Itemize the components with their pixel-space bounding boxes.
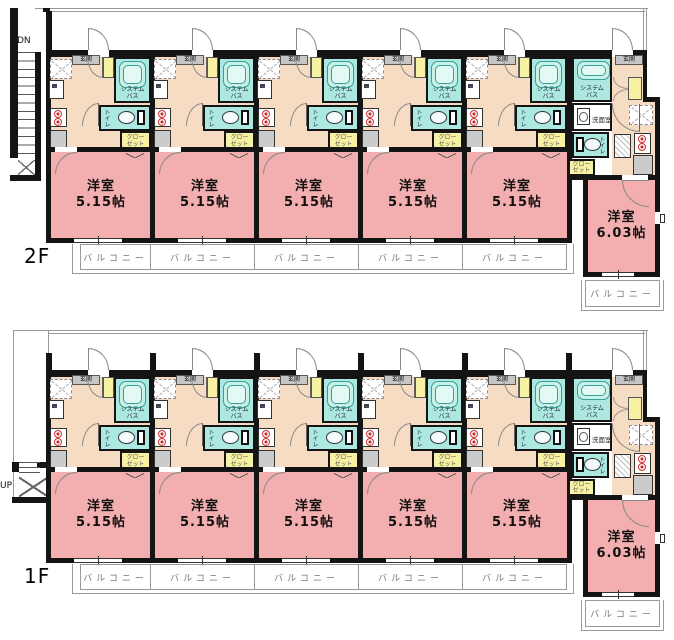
room-size: 5.15帖 [467, 515, 567, 531]
room-size: 5.15帖 [363, 515, 463, 531]
toilet-room: トイレ [572, 452, 609, 478]
apartment-unit: 玄関 システム バス トイレ クロー ゼット [254, 28, 359, 274]
toilet-tank-icon [345, 430, 353, 445]
washing-machine-area [258, 379, 280, 399]
shoe-cabinet [103, 57, 114, 78]
burner-icon [470, 110, 478, 118]
wall-stub [566, 353, 572, 372]
kitchen-sink-icon [465, 80, 480, 99]
refrigerator-space [633, 155, 653, 175]
floor-2f: DN DN 玄関 システム [0, 6, 674, 322]
closet-label-line1: クロー [434, 134, 461, 141]
bath-label-line1: システム [532, 406, 565, 413]
closet-label-line2: ゼット [570, 168, 593, 174]
bathtub-icon [223, 61, 250, 88]
system-bath: システム バス [426, 377, 463, 423]
kitchen-sink-icon [257, 80, 272, 99]
room-size: 5.15帖 [259, 515, 359, 531]
bath-label: システム バス [428, 86, 461, 100]
window [660, 534, 665, 543]
room-name: 洋室 [467, 179, 567, 195]
burner-icon [54, 438, 62, 446]
room-size: 5.15帖 [51, 515, 151, 531]
kitchen-sink-icon [153, 80, 168, 99]
bathtub-icon [535, 61, 562, 88]
shoe-cabinet [519, 57, 530, 78]
toilet-bowl-icon [534, 431, 551, 444]
bathtub-icon [577, 381, 610, 400]
kitchen-sink-icon [49, 400, 64, 419]
bath-label-line2: バス [220, 413, 253, 420]
stove-icon [258, 428, 275, 447]
bath-label: システム バス [116, 86, 149, 100]
entry-door-arc [504, 28, 525, 50]
window [386, 238, 434, 243]
bath-label: システム バス [220, 406, 253, 420]
stove-icon [154, 108, 171, 127]
kitchen-sink-icon [465, 400, 480, 419]
bathtub-icon [223, 381, 250, 408]
toilet-bowl-icon [118, 111, 135, 124]
entry-door-arc [192, 348, 213, 370]
washbasin-icon [577, 108, 590, 125]
entry-door-arc [612, 28, 633, 50]
burner-icon [54, 110, 62, 118]
toilet-room: トイレ [411, 425, 463, 451]
bath-label-line2: バス [532, 93, 565, 100]
room-name: 洋室 [467, 499, 567, 515]
toilet-room: トイレ [411, 105, 463, 131]
room-name: 洋室 [259, 499, 359, 515]
room-name: 洋室 [155, 179, 255, 195]
kitchen-sink-icon [614, 134, 631, 158]
toilet-bowl-icon [430, 111, 447, 124]
entry-door-arc [88, 28, 109, 50]
bath-label: システム バス [428, 406, 461, 420]
burner-icon [158, 118, 166, 126]
room-label: 洋室 5.15帖 [259, 499, 359, 531]
toilet-bowl-icon [222, 111, 239, 124]
room-name: 洋室 [363, 499, 463, 515]
wall [655, 97, 660, 277]
washroom-label: 洗面室 [592, 434, 612, 444]
floor-1f: UP UP 玄関 システム [0, 326, 674, 640]
window [74, 558, 122, 563]
floor-label: 2F [24, 244, 66, 268]
burner-icon [262, 430, 270, 438]
toilet-room: トイレ [307, 105, 359, 131]
washing-machine-area [466, 59, 488, 79]
room-label: 洋室 5.15帖 [155, 499, 255, 531]
burner-icon [366, 438, 374, 446]
washing-machine-area [50, 379, 72, 399]
toilet-label: トイレ [415, 429, 422, 449]
toilet-bowl-icon [326, 111, 343, 124]
room-name: 洋室 [51, 179, 151, 195]
bath-label-line1: システム [574, 85, 610, 92]
toilet-room: トイレ [515, 425, 567, 451]
bath-label: システム バス [532, 86, 565, 100]
entry-door-arc [88, 348, 109, 370]
entrance-label: 玄関 [615, 375, 643, 385]
system-bath: システム バス [114, 57, 151, 103]
system-bath: システム バス [322, 377, 359, 423]
toilet-label: トイレ [103, 109, 110, 129]
apartment-unit: 玄関 システム バス トイレ クロー ゼット [358, 28, 463, 274]
burner-icon [262, 110, 270, 118]
window [282, 558, 330, 563]
bath-label-line2: バス [116, 413, 149, 420]
toilet-label: トイレ [311, 109, 318, 129]
bath-label: システム バス [220, 86, 253, 100]
toilet-tank-icon [137, 430, 145, 445]
stove-icon [466, 108, 483, 127]
kitchen-sink-icon [361, 400, 376, 419]
apartment-unit: 玄関 システム バス トイレ クロー ゼット [254, 348, 359, 594]
room-name: 洋室 [588, 210, 655, 226]
room-label: 洋室 5.15帖 [51, 499, 151, 531]
bathtub-icon [577, 61, 610, 80]
room-size: 5.15帖 [259, 195, 359, 211]
toilet-label: トイレ [519, 109, 526, 129]
bathtub-icon [119, 381, 146, 408]
bath-label-line1: システム [116, 86, 149, 93]
toilet-bowl-icon [430, 431, 447, 444]
burner-icon [470, 118, 478, 126]
bath-label-line1: システム [428, 406, 461, 413]
closet-label-line1: クロー [538, 454, 565, 461]
entry-door-arc [296, 28, 317, 50]
bath-label-line2: バス [532, 413, 565, 420]
room-size: 5.15帖 [467, 195, 567, 211]
toilet-bowl-icon [534, 111, 551, 124]
washing-machine-area [466, 379, 488, 399]
stove-icon [362, 108, 379, 127]
entry-door-arc [400, 348, 421, 370]
bath-label-line2: バス [428, 93, 461, 100]
window [602, 272, 634, 277]
wall-stub [46, 11, 52, 52]
shoe-cabinet [415, 57, 426, 78]
wall-stub [46, 353, 52, 372]
toilet-label: トイレ [207, 429, 214, 449]
room-label: 洋室 6.03帖 [588, 210, 655, 242]
bath-label-line2: バス [428, 413, 461, 420]
balcony: バルコニー [585, 600, 660, 627]
balcony-outer-edge [72, 564, 574, 594]
bath-label-line2: バス [324, 93, 357, 100]
refrigerator-space [633, 475, 653, 495]
bathtub-icon [119, 61, 146, 88]
bathtub-icon [327, 61, 354, 88]
room-name: 洋室 [51, 499, 151, 515]
bath-label-line1: システム [324, 406, 357, 413]
entry-door-arc [296, 348, 317, 370]
closet-label-line2: ゼット [570, 488, 593, 494]
closet-folding-door [126, 472, 144, 480]
stove-icon [50, 108, 67, 127]
closet-label-line1: クロー [330, 454, 357, 461]
apartment-unit: 玄関 システム バス トイレ クロー ゼット [462, 348, 567, 594]
closet-folding-door [334, 472, 352, 480]
apartment-unit-corner: 玄関 システム バス 洗面室 トイレ クロー ゼット [567, 28, 668, 312]
stove-icon [634, 453, 651, 474]
room-size: 6.03帖 [588, 226, 655, 242]
toilet-bowl-icon [222, 431, 239, 444]
shoe-cabinet [311, 377, 322, 398]
system-bath: システム バス [572, 377, 612, 422]
toilet-label: トイレ [598, 456, 605, 476]
toilet-label: トイレ [415, 109, 422, 129]
toilet-tank-icon [576, 137, 584, 152]
bath-label-line1: システム [532, 86, 565, 93]
closet-folding-door [334, 152, 352, 160]
closet-label-line1: クロー [538, 134, 565, 141]
apartment-unit: 玄関 システム バス トイレ クロー ゼット [462, 28, 567, 274]
bath-label-line1: システム [220, 406, 253, 413]
room-name: 洋室 [363, 179, 463, 195]
apartment-unit-corner: 玄関 システム バス 洗面室 トイレ クロー ゼット [567, 348, 668, 632]
closet-label-line1: クロー [122, 134, 149, 141]
stove-icon [50, 428, 67, 447]
bathtub-icon [431, 381, 458, 408]
balcony: バルコニー [585, 280, 660, 307]
closet-label-line1: クロー [226, 454, 253, 461]
closet: クロー ゼット [568, 479, 595, 496]
bath-label-line1: システム [324, 86, 357, 93]
system-bath: システム バス [530, 377, 567, 423]
toilet-room: トイレ [515, 105, 567, 131]
closet-folding-door [542, 472, 560, 480]
room-name: 洋室 [259, 179, 359, 195]
shoe-cabinet [628, 397, 642, 420]
washroom: 洗面室 [572, 103, 612, 131]
burner-icon [262, 118, 270, 126]
burner-icon [638, 135, 646, 143]
toilet-room: トイレ [99, 425, 151, 451]
system-bath: システム バス [530, 57, 567, 103]
bathtub-icon [535, 381, 562, 408]
window [490, 558, 538, 563]
closet-label-line1: クロー [434, 454, 461, 461]
burner-icon [366, 118, 374, 126]
apartment-unit: 玄関 システム バス トイレ クロー ゼット [150, 28, 255, 274]
shoe-cabinet [207, 377, 218, 398]
system-bath: システム バス [218, 57, 255, 103]
room-label: 洋室 5.15帖 [51, 179, 151, 211]
bathtub-icon [327, 381, 354, 408]
wall-stub [358, 353, 364, 372]
room-size: 5.15帖 [363, 195, 463, 211]
stove-icon [466, 428, 483, 447]
wall-stub [462, 353, 468, 372]
room-label: 洋室 6.03帖 [588, 530, 655, 562]
burner-icon [262, 438, 270, 446]
shoe-cabinet [103, 377, 114, 398]
washing-machine-area [362, 379, 384, 399]
shoe-cabinet [519, 377, 530, 398]
closet-label-line1: クロー [122, 454, 149, 461]
apartment-unit: 玄関 システム バス トイレ クロー ゼット [150, 348, 255, 594]
kitchen-sink-icon [153, 400, 168, 419]
kitchen-sink-icon [361, 80, 376, 99]
kitchen-sink-icon [257, 400, 272, 419]
burner-icon [158, 438, 166, 446]
system-bath: システム バス [572, 57, 612, 102]
window [490, 238, 538, 243]
entry-door-arc [612, 348, 633, 370]
toilet-tank-icon [241, 110, 249, 125]
system-bath: システム バス [426, 57, 463, 103]
burner-icon [638, 463, 646, 471]
toilet-tank-icon [449, 110, 457, 125]
closet-label-line1: クロー [330, 134, 357, 141]
bath-label-line2: バス [116, 93, 149, 100]
toilet-label: トイレ [207, 109, 214, 129]
toilet-tank-icon [553, 110, 561, 125]
toilet-room: トイレ [572, 132, 609, 158]
window [74, 238, 122, 243]
toilet-tank-icon [345, 110, 353, 125]
burner-icon [54, 118, 62, 126]
room-label: 洋室 5.15帖 [363, 499, 463, 531]
burner-icon [366, 430, 374, 438]
window [602, 592, 634, 597]
closet-folding-door [438, 152, 456, 160]
balcony-outer-edge [72, 244, 574, 274]
units-row: 玄関 システム バス トイレ クロー ゼット [0, 6, 674, 322]
toilet-label: トイレ [598, 136, 605, 156]
toilet-tank-icon [449, 430, 457, 445]
apartment-unit: 玄関 システム バス トイレ クロー ゼット [46, 28, 151, 274]
washing-machine-area [50, 59, 72, 79]
stove-icon [634, 133, 651, 154]
washing-machine-area [154, 59, 176, 79]
bath-label: システム バス [324, 406, 357, 420]
washing-machine-area [154, 379, 176, 399]
bath-label-line2: バス [220, 93, 253, 100]
toilet-room: トイレ [307, 425, 359, 451]
window [660, 214, 665, 223]
bath-label: システム バス [574, 85, 610, 99]
burner-icon [470, 430, 478, 438]
bath-label-line2: バス [574, 412, 610, 419]
toilet-bowl-icon [326, 431, 343, 444]
room-size: 5.15帖 [155, 195, 255, 211]
stove-icon [258, 108, 275, 127]
toilet-tank-icon [137, 110, 145, 125]
system-bath: システム バス [322, 57, 359, 103]
floor-label: 1F [24, 564, 66, 588]
toilet-tank-icon [576, 457, 584, 472]
burner-icon [158, 430, 166, 438]
burner-icon [366, 110, 374, 118]
shoe-cabinet [415, 377, 426, 398]
balcony-label: バルコニー [590, 607, 655, 620]
room-size: 6.03帖 [588, 546, 655, 562]
system-bath: システム バス [114, 377, 151, 423]
floor-plan: DN DN 玄関 システム [0, 0, 674, 640]
balcony-label: バルコニー [590, 287, 655, 300]
entry-door-arc [192, 28, 213, 50]
room-label: 洋室 5.15帖 [467, 499, 567, 531]
washroom: 洗面室 [572, 423, 612, 451]
kitchen-sink-icon [49, 80, 64, 99]
bath-label: システム バス [532, 406, 565, 420]
entry-door-arc [504, 348, 525, 370]
bath-label: システム バス [324, 86, 357, 100]
closet-folding-door [230, 152, 248, 160]
window [282, 238, 330, 243]
wall-stub [150, 353, 156, 372]
toilet-tank-icon [241, 430, 249, 445]
shoe-cabinet [628, 77, 642, 100]
toilet-label: トイレ [519, 429, 526, 449]
burner-icon [638, 455, 646, 463]
wall [655, 417, 660, 597]
toilet-label: トイレ [311, 429, 318, 449]
closet-label-line1: クロー [226, 134, 253, 141]
toilet-label: トイレ [103, 429, 110, 449]
toilet-room: トイレ [203, 105, 255, 131]
toilet-room: トイレ [99, 105, 151, 131]
room-size: 5.15帖 [51, 195, 151, 211]
washroom-label: 洗面室 [592, 114, 612, 124]
burner-icon [158, 110, 166, 118]
closet-folding-door [126, 152, 144, 160]
bath-label-line1: システム [428, 86, 461, 93]
room-label: 洋室 5.15帖 [259, 179, 359, 211]
bathtub-icon [431, 61, 458, 88]
bath-label-line1: システム [574, 405, 610, 412]
shoe-cabinet [311, 57, 322, 78]
burner-icon [638, 143, 646, 151]
apartment-unit: 玄関 システム バス トイレ クロー ゼット [358, 348, 463, 594]
toilet-room: トイレ [203, 425, 255, 451]
burner-icon [54, 430, 62, 438]
bath-label-line2: バス [574, 92, 610, 99]
closet-folding-door [542, 152, 560, 160]
bath-label-line2: バス [324, 413, 357, 420]
washing-machine-area [258, 59, 280, 79]
system-bath: システム バス [218, 377, 255, 423]
window [178, 238, 226, 243]
room-size: 5.15帖 [155, 515, 255, 531]
bath-label-line1: システム [220, 86, 253, 93]
room-name: 洋室 [155, 499, 255, 515]
washbasin-icon [577, 428, 590, 445]
room-label: 洋室 5.15帖 [155, 179, 255, 211]
closet-folding-door [230, 472, 248, 480]
bath-label-line1: システム [116, 406, 149, 413]
burner-icon [470, 438, 478, 446]
room-label: 洋室 5.15帖 [363, 179, 463, 211]
room-label: 洋室 5.15帖 [467, 179, 567, 211]
washing-machine-area [362, 59, 384, 79]
room-name: 洋室 [588, 530, 655, 546]
toilet-bowl-icon [118, 431, 135, 444]
bath-label: システム バス [116, 406, 149, 420]
closet: クロー ゼット [568, 159, 595, 176]
stove-icon [154, 428, 171, 447]
stove-icon [362, 428, 379, 447]
entry-door-arc [400, 28, 421, 50]
closet-folding-door [438, 472, 456, 480]
shoe-cabinet [207, 57, 218, 78]
entrance-label: 玄関 [615, 55, 643, 65]
kitchen-sink-icon [614, 454, 631, 478]
window [178, 558, 226, 563]
